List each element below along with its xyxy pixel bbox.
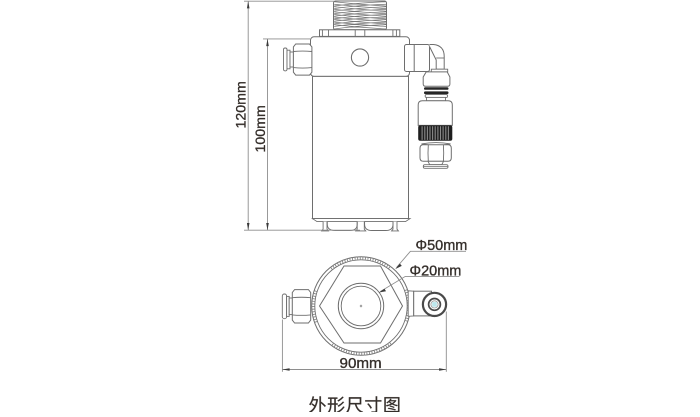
svg-text:100mm: 100mm bbox=[253, 105, 269, 152]
svg-text:120mm: 120mm bbox=[234, 81, 250, 128]
svg-text:90mm: 90mm bbox=[340, 355, 382, 372]
svg-text:Φ20mm: Φ20mm bbox=[410, 263, 462, 279]
svg-text:Φ50mm: Φ50mm bbox=[416, 238, 468, 254]
